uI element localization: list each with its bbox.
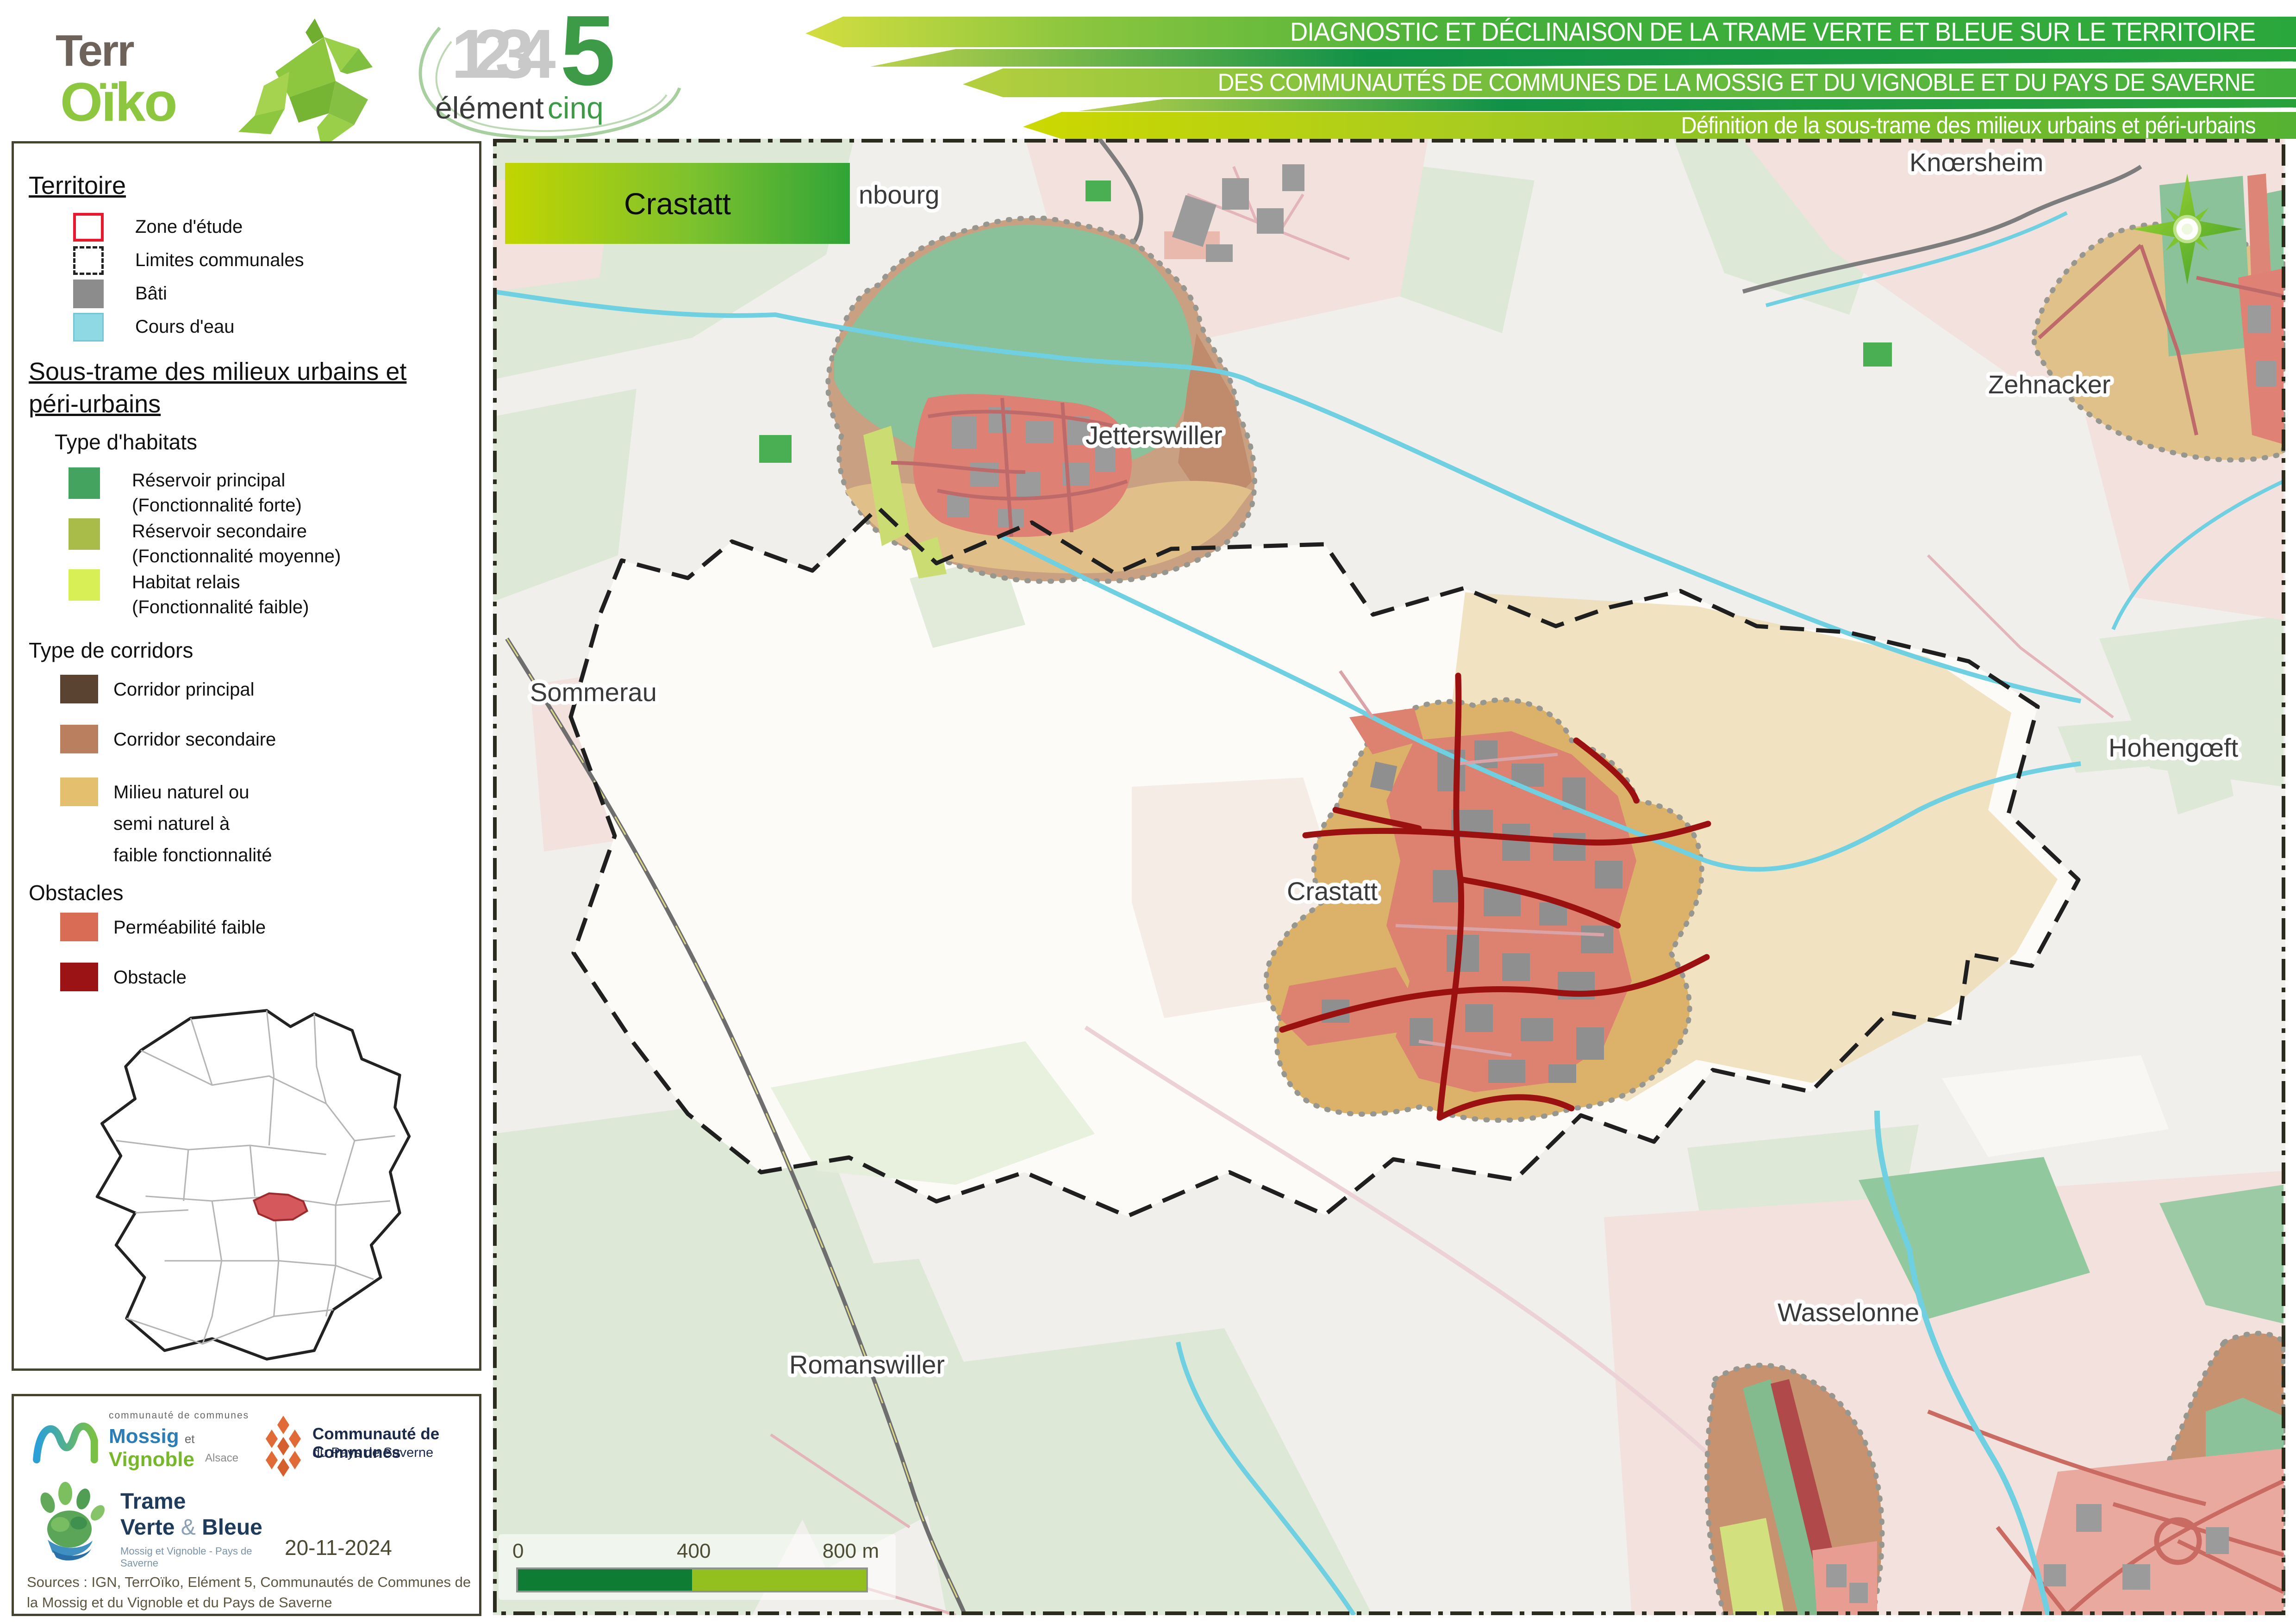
mossig-name2: Vignoble <box>109 1448 194 1471</box>
legend-label-corridor-secondaire: Corridor secondaire <box>113 729 276 750</box>
town-label: Knœrsheim <box>1909 148 2043 177</box>
legend-swatch-habitat-relais <box>69 569 100 601</box>
legend-label-reservoir-secondaire: Réservoir secondaire <box>132 521 307 542</box>
town-label: Wasselonne <box>1778 1298 1919 1327</box>
legend-habitats-title: Type d'habitats <box>55 429 197 454</box>
element-cinq-wordmark: élémentcinq <box>435 90 604 125</box>
mossig-name1: Mossig <box>109 1425 179 1448</box>
scale-tick-800: 800 m <box>823 1540 879 1563</box>
legend-swatch-cours-eau <box>73 313 104 342</box>
scale-bar-segments <box>516 1567 868 1592</box>
scale-tick-400: 400 <box>677 1540 711 1563</box>
town-label: Hohengœft <box>2109 733 2239 762</box>
legend-soustrame-title-line1: Sous-trame des milieux urbains et <box>29 357 406 386</box>
mossig-m-icon <box>30 1409 100 1469</box>
saverne-line2: du Pays de Saverne <box>312 1445 433 1461</box>
town-label: Sommerau <box>530 678 657 707</box>
sources-line2: la Mossig et du Vignoble et du Pays de S… <box>27 1592 471 1613</box>
legend-label-limites-communales: Limites communales <box>135 250 304 271</box>
page: { "branding": { "terroiko": {"part1": "T… <box>0 0 2296 1623</box>
legend-label-permeabilite-faible: Perméabilité faible <box>113 917 266 938</box>
element-cinq-swoosh-icon <box>407 9 694 148</box>
mossig-top-text: communauté de communes <box>109 1410 249 1421</box>
title-banner-line2: DES COMMUNAUTÉS DE COMMUNES DE LA MOSSIG… <box>963 68 2296 97</box>
map-title-box: Crastatt <box>505 163 850 244</box>
mossig-vignoble-logo: communauté de communes Mossig et Vignobl… <box>30 1409 257 1474</box>
title-banner-line3: Définition de la sous-trame des milieux … <box>1023 112 2296 139</box>
legend-panel: Territoire Zone d'étude Limites communal… <box>12 141 481 1371</box>
legend-corridors-title: Type de corridors <box>29 638 193 663</box>
banner-swoosh-icon <box>1079 99 2296 111</box>
terroiko-wordmark-terr: Terr <box>56 25 133 76</box>
legend-territoire-title: Territoire <box>29 171 126 200</box>
inset-location-map <box>69 1002 421 1363</box>
tvb-subtitle: Mossig et Vignoble - Pays de Saverne <box>120 1545 289 1569</box>
mossig-et: et <box>185 1432 195 1446</box>
tvb-line1: Trame <box>120 1489 289 1515</box>
element-cinq-numbers: 1234 <box>451 14 539 94</box>
frog-icon <box>220 16 387 150</box>
town-label: Jetterswiller <box>1086 421 1223 450</box>
terroiko-logo: Terr Oïko <box>25 12 377 137</box>
terroiko-wordmark-oiko: Oïko <box>60 71 176 134</box>
legend-swatch-permeabilite-faible <box>60 913 98 941</box>
legend-label-reservoir-principal-sub: (Fonctionnalité forte) <box>132 495 302 516</box>
town-label: Romanswiller <box>789 1350 945 1379</box>
saverne-diamonds-icon <box>262 1415 306 1484</box>
legend-swatch-milieu-naturel <box>60 777 98 806</box>
legend-label-milieu-naturel-2: semi naturel à <box>113 814 230 834</box>
legend-label-reservoir-secondaire-sub: (Fonctionnalité moyenne) <box>132 546 341 567</box>
legend-swatch-obstacle <box>60 963 98 991</box>
legend-swatch-limites-communales <box>73 246 104 275</box>
legend-soustrame-title-line2: péri-urbains <box>29 390 161 418</box>
map-date: 20-11-2024 <box>285 1535 392 1560</box>
legend-swatch-reservoir-secondaire <box>69 518 100 550</box>
pays-de-saverne-logo: Communauté de Communes du Pays de Savern… <box>262 1415 479 1475</box>
legend-label-bati: Bâti <box>135 283 167 304</box>
credits-panel: communauté de communes Mossig et Vignobl… <box>12 1394 481 1616</box>
banner-swoosh-icon <box>870 49 2296 67</box>
legend-swatch-corridor-principal <box>60 675 98 703</box>
town-label: Zehnacker <box>1988 370 2111 399</box>
legend-swatch-corridor-secondaire <box>60 725 98 753</box>
legend-label-milieu-naturel-1: Milieu naturel ou <box>113 782 250 803</box>
town-label: nbourg <box>859 180 939 209</box>
town-label: Crastatt <box>1287 877 1378 906</box>
map-canvas: nbourg Knœrsheim Jetterswiller Zehnacker… <box>493 139 2285 1615</box>
trame-verte-bleue-logo: Trame Verte & Bleue Mossig et Vignoble -… <box>30 1480 289 1573</box>
legend-swatch-zone-etude <box>73 213 104 242</box>
sources-line1: Sources : IGN, TerrOïko, Elément 5, Comm… <box>27 1572 471 1592</box>
element-cinq-logo: 1234 5 élémentcinq <box>407 9 694 139</box>
map-drawing: nbourg Knœrsheim Jetterswiller Zehnacker… <box>493 139 2285 1615</box>
legend-label-habitat-relais-sub: (Fonctionnalité faible) <box>132 597 309 618</box>
legend-label-milieu-naturel-3: faible fonctionnalité <box>113 845 272 866</box>
legend-swatch-bati <box>73 280 104 308</box>
scale-bar: 0 400 800 m <box>499 1534 896 1600</box>
legend-obstacles-title: Obstacles <box>29 880 124 905</box>
mossig-region: Alsace <box>205 1452 238 1465</box>
legend-label-habitat-relais: Habitat relais <box>132 572 240 593</box>
legend-label-cours-eau: Cours d'eau <box>135 317 234 337</box>
legend-swatch-reservoir-principal <box>69 467 100 499</box>
scale-tick-0: 0 <box>512 1540 524 1563</box>
sources-text: Sources : IGN, TerrOïko, Elément 5, Comm… <box>27 1572 471 1613</box>
legend-label-reservoir-principal: Réservoir principal <box>132 470 285 491</box>
tvb-paw-icon <box>30 1480 111 1566</box>
legend-label-obstacle: Obstacle <box>113 967 187 988</box>
title-banner-line1: DIAGNOSTIC ET DÉCLINAISON DE LA TRAME VE… <box>805 17 2296 47</box>
legend-label-zone-etude: Zone d'étude <box>135 217 243 237</box>
tvb-line2: Verte & Bleue <box>120 1515 289 1541</box>
legend-label-corridor-principal: Corridor principal <box>113 679 255 700</box>
